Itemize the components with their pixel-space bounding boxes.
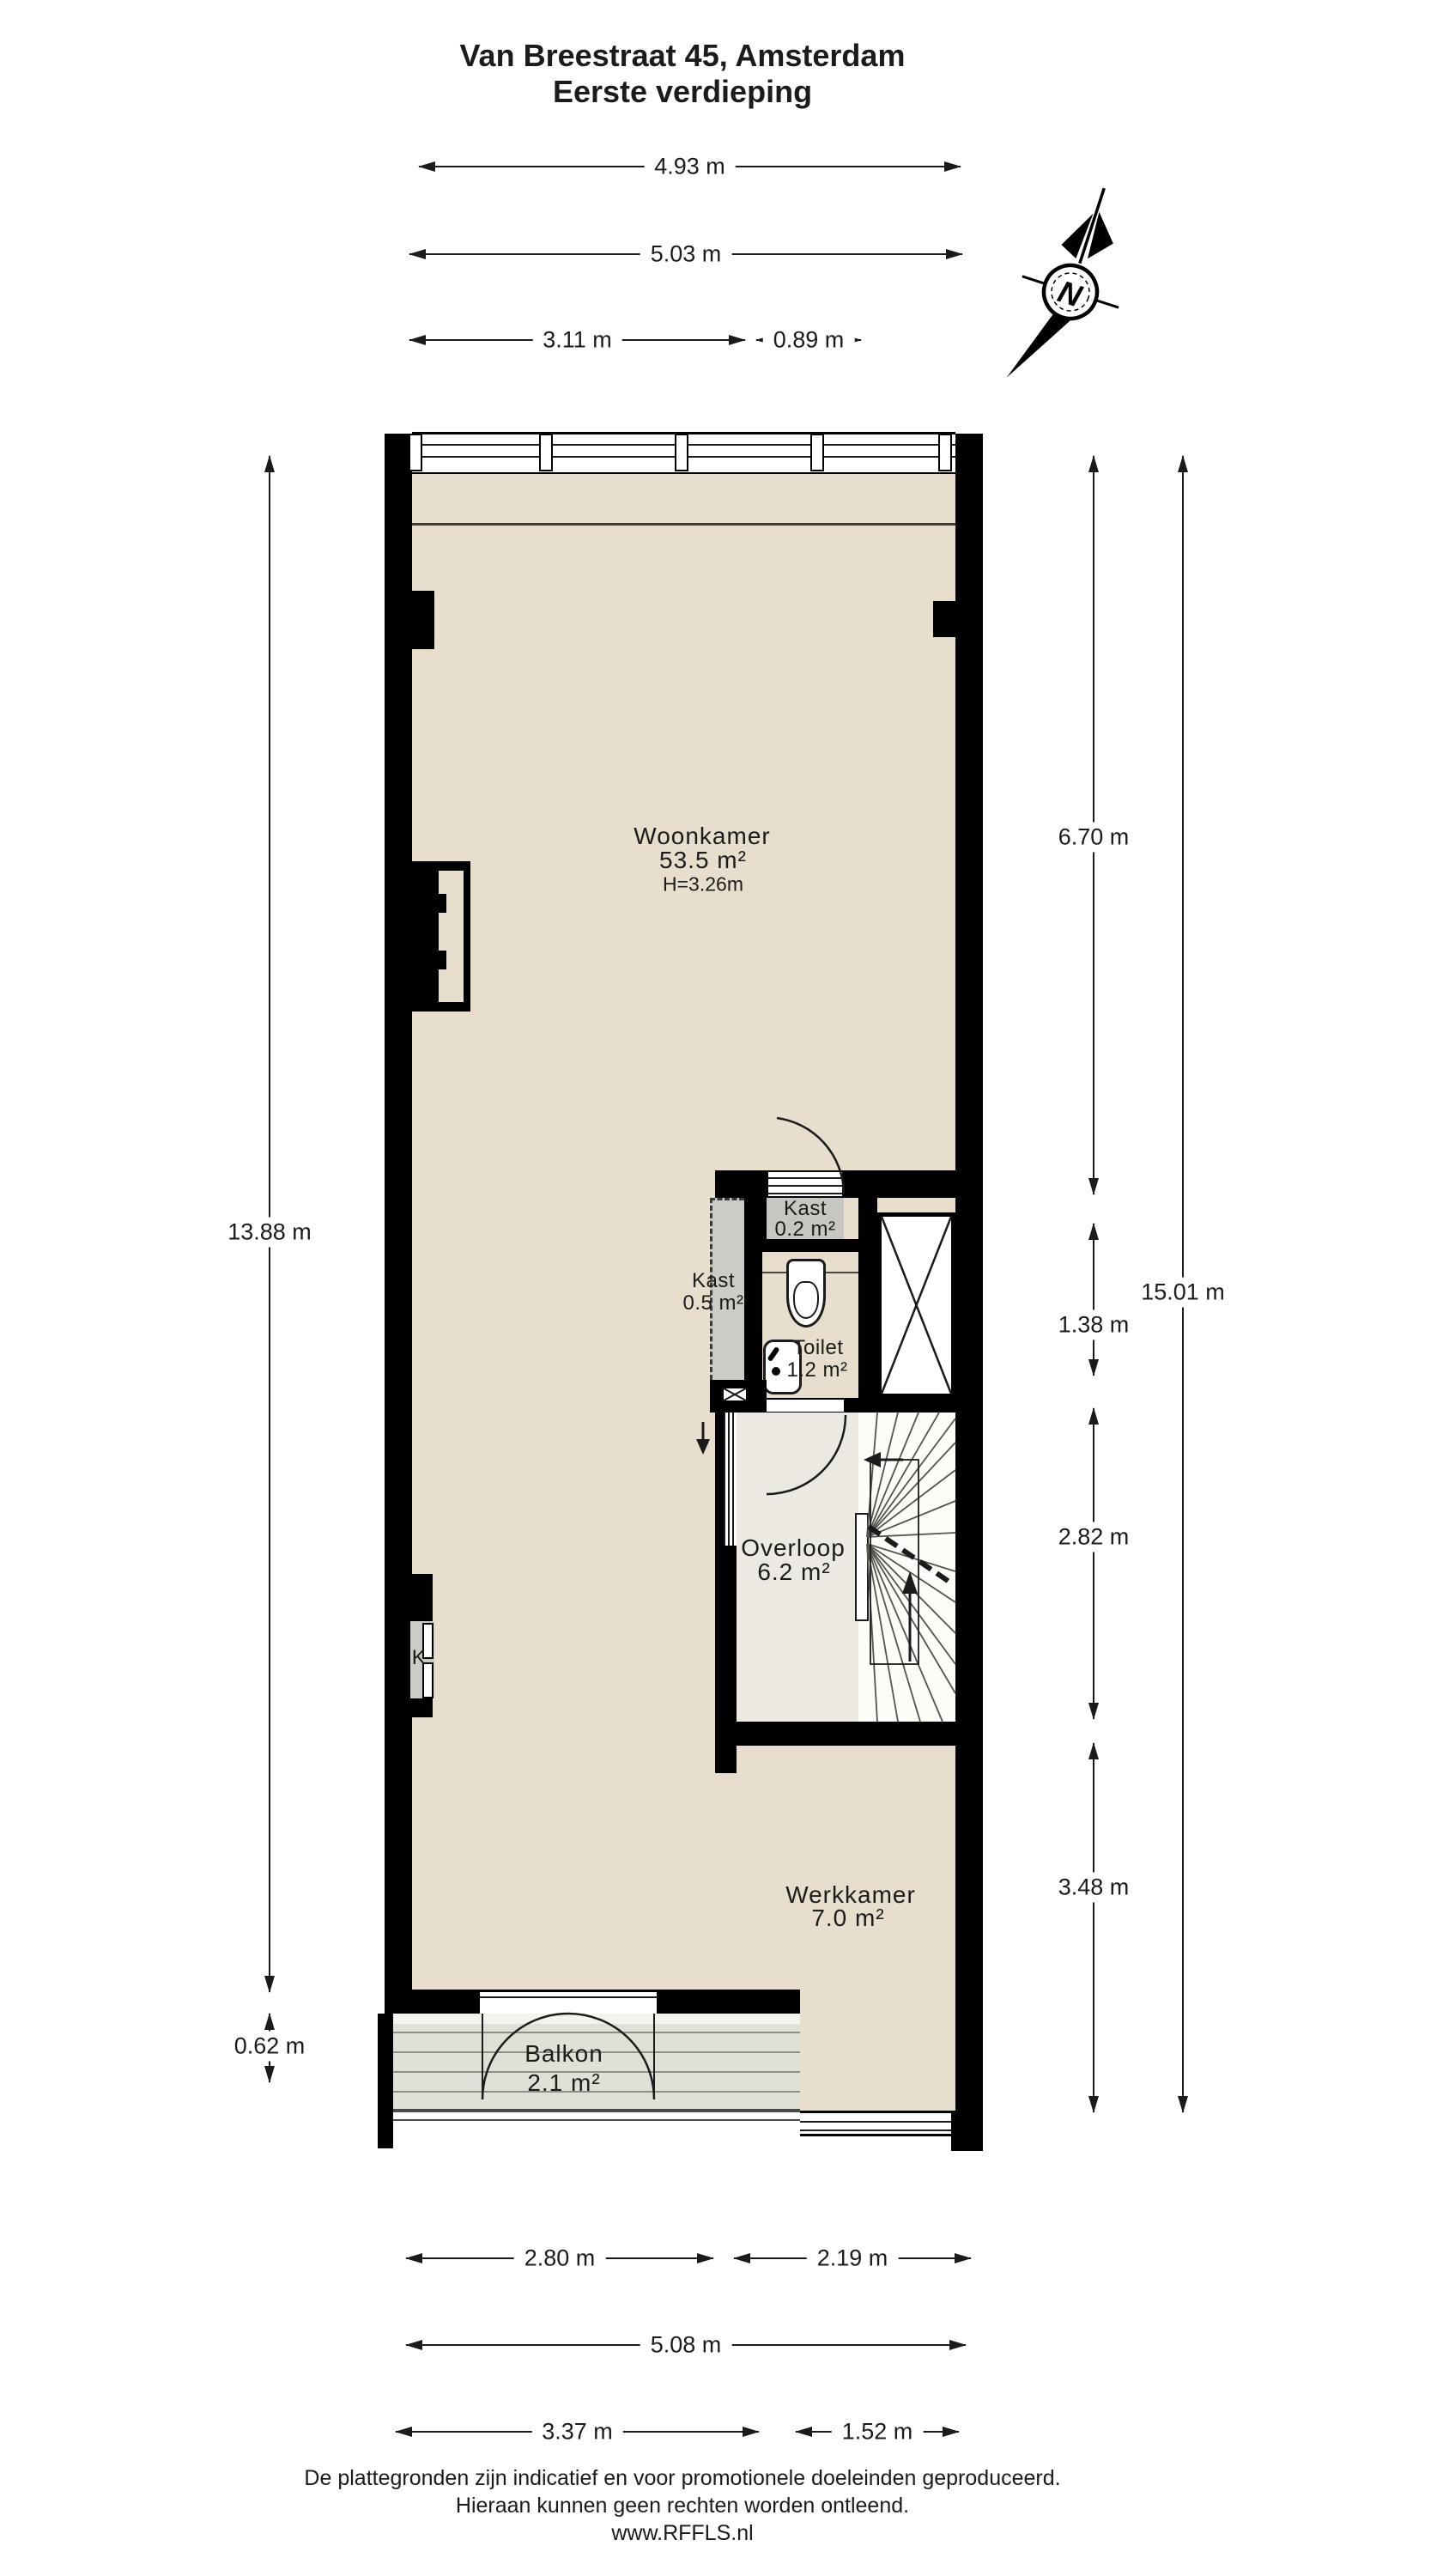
woonkamer-area: 53.5 m²	[659, 847, 747, 874]
core-wall-right	[858, 1170, 877, 1413]
floor-step-line	[412, 523, 955, 526]
arrowhead-down-icon	[1178, 2096, 1188, 2113]
wall-corner-bottom-right	[951, 2111, 983, 2151]
arrowhead-up-icon	[1088, 455, 1099, 472]
dimension-label: 0.62 m	[227, 2032, 312, 2062]
overloop-bottom-wall	[729, 1722, 955, 1746]
dimension-label: 3.48 m	[1052, 1873, 1137, 1903]
wall-right	[955, 434, 983, 2151]
balcony-side-wall	[378, 2014, 393, 2148]
stairs-balustrade	[855, 1513, 869, 1621]
dimension-horizontal: 3.37 m	[396, 2431, 759, 2433]
dimension-horizontal: 0.89 m	[756, 339, 861, 341]
dimension-vertical: 15.01 m	[1182, 456, 1184, 2112]
dimension-vertical: 2.82 m	[1093, 1408, 1094, 1719]
footer-disclaimer-1: De plattegronden zijn indicatief en voor…	[304, 2466, 1060, 2491]
footer-disclaimer-2: Hieraan kunnen geen rechten worden ontle…	[456, 2494, 909, 2518]
dimension-label: 3.37 m	[531, 2419, 623, 2445]
window-mullion	[938, 434, 952, 471]
dimension-horizontal: 5.03 m	[409, 253, 962, 255]
page-subtitle: Eerste verdieping	[553, 74, 812, 110]
balcony-wall-left	[385, 1990, 480, 2014]
arrowhead-down-icon	[1088, 1703, 1099, 1720]
dimension-horizontal: 2.19 m	[734, 2257, 971, 2259]
kast-small-area: 0.2 m²	[774, 1218, 835, 1242]
arrowhead-left-icon	[405, 2340, 422, 2350]
shaft-box	[877, 1212, 955, 1398]
arrowhead-left-icon	[395, 2427, 412, 2437]
wall-left	[385, 434, 412, 2014]
dimension-vertical: 0.62 m	[269, 2014, 270, 2082]
balcony-door-threshold	[480, 1990, 657, 2014]
arrowhead-left-icon	[795, 2427, 812, 2437]
arrowhead-right-icon	[955, 2253, 972, 2263]
overloop-wall-strip	[715, 1413, 724, 1548]
overloop-glass-panel	[724, 1413, 737, 1548]
arrowhead-right-icon	[729, 335, 746, 345]
kast-small-hatch	[767, 1170, 844, 1198]
overloop-area: 6.2 m²	[757, 1558, 830, 1586]
arrowhead-up-icon	[264, 2013, 275, 2030]
dimension-label: 15.01 m	[1134, 1278, 1232, 1308]
arrowhead-up-icon	[1088, 1223, 1099, 1240]
dimension-horizontal: 2.80 m	[406, 2257, 713, 2259]
balkon-name: Balkon	[524, 2040, 603, 2068]
kast-large-name: Kast	[692, 1269, 735, 1293]
dimension-horizontal: 3.11 m	[409, 339, 745, 341]
arrowhead-down-icon	[1088, 1178, 1099, 1195]
arrowhead-up-icon	[1178, 455, 1188, 472]
balkon-area: 2.1 m²	[527, 2069, 600, 2097]
arrowhead-down-icon	[264, 1976, 275, 1993]
window-mullion	[675, 434, 688, 471]
arrowhead-right-icon	[697, 2253, 714, 2263]
arrowhead-down-icon	[264, 2066, 275, 2083]
core-wall-top-left	[715, 1170, 767, 1198]
dimension-label: 5.03 m	[640, 241, 732, 268]
dimension-horizontal: 1.52 m	[796, 2431, 959, 2433]
dimension-label: 5.08 m	[640, 2332, 732, 2359]
kast-large-area: 0.5 m²	[682, 1291, 743, 1315]
compass-rose: N	[987, 176, 1159, 408]
arrowhead-down-icon	[1088, 1359, 1099, 1376]
dimension-label: 0.89 m	[763, 327, 855, 354]
dimension-label: 2.82 m	[1052, 1522, 1137, 1552]
arrowhead-left-icon	[733, 2253, 750, 2263]
werkkamer-floor-lower	[800, 2014, 955, 2111]
arrowhead-right-icon	[946, 249, 963, 259]
arrowhead-right-icon	[949, 2340, 967, 2350]
k-duct-label: K	[412, 1646, 427, 1670]
dimension-vertical: 1.38 m	[1093, 1224, 1094, 1376]
window-mullion	[409, 434, 422, 471]
toilet-bowl	[793, 1281, 819, 1319]
mini-duct-box	[722, 1387, 748, 1402]
compass-n-label: N	[1054, 273, 1087, 313]
arrowhead-up-icon	[1088, 1407, 1099, 1425]
arrowhead-left-icon	[418, 161, 435, 172]
arrowhead-up-icon	[264, 455, 275, 472]
stairs-floor	[858, 1413, 955, 1722]
sink-drain	[772, 1367, 780, 1376]
chimney-recess	[439, 871, 464, 1002]
dimension-label: 13.88 m	[221, 1218, 318, 1248]
chimney-notch	[439, 894, 446, 913]
arrowhead-right-icon	[944, 161, 961, 172]
dimension-vertical: 13.88 m	[269, 456, 270, 1992]
window-mullion	[810, 434, 824, 471]
toilet-door-threshold	[767, 1398, 844, 1413]
balcony-deck-edge	[392, 2014, 800, 2024]
dimension-label: 1.38 m	[1052, 1310, 1137, 1340]
dimension-horizontal: 5.08 m	[406, 2344, 966, 2346]
balcony-wall-right	[657, 1990, 800, 2014]
werkkamer-window	[800, 2111, 955, 2136]
footer-website: www.RFFLS.nl	[611, 2521, 753, 2546]
pilaster-right	[933, 601, 955, 637]
page-title: Van Breestraat 45, Amsterdam	[460, 38, 906, 74]
arrowhead-left-icon	[409, 249, 426, 259]
dimension-horizontal: 4.93 m	[419, 166, 961, 167]
arrowhead-up-icon	[1088, 1742, 1099, 1759]
toilet-area: 1.2 m²	[786, 1358, 847, 1382]
arrowhead-right-icon	[943, 2427, 960, 2437]
window-mullion	[539, 434, 553, 471]
floor-plan-page: Van Breestraat 45, Amsterdam Eerste verd…	[0, 0, 1449, 2576]
chimney-notch	[439, 951, 446, 969]
dimension-label: 2.19 m	[807, 2245, 899, 2272]
toilet-name: Toilet	[792, 1336, 843, 1360]
dimension-label: 2.80 m	[514, 2245, 606, 2272]
pilaster-left	[412, 591, 434, 649]
arrowhead-left-icon	[405, 2253, 422, 2263]
woonkamer-height: H=3.26m	[663, 873, 743, 896]
dimension-label: 4.93 m	[644, 154, 736, 180]
balcony-railing	[392, 2109, 800, 2121]
werkkamer-area: 7.0 m²	[811, 1905, 884, 1932]
dimension-label: 3.11 m	[532, 327, 622, 354]
arrowhead-right-icon	[743, 2427, 760, 2437]
dimension-vertical: 6.70 m	[1093, 456, 1094, 1194]
core-wall-bottom-right	[844, 1398, 955, 1413]
dimension-label: 1.52 m	[832, 2419, 924, 2445]
dimension-label: 6.70 m	[1052, 823, 1137, 853]
arrowhead-left-icon	[409, 335, 426, 345]
dimension-vertical: 3.48 m	[1093, 1743, 1094, 2112]
arrowhead-down-icon	[1088, 2096, 1099, 2113]
